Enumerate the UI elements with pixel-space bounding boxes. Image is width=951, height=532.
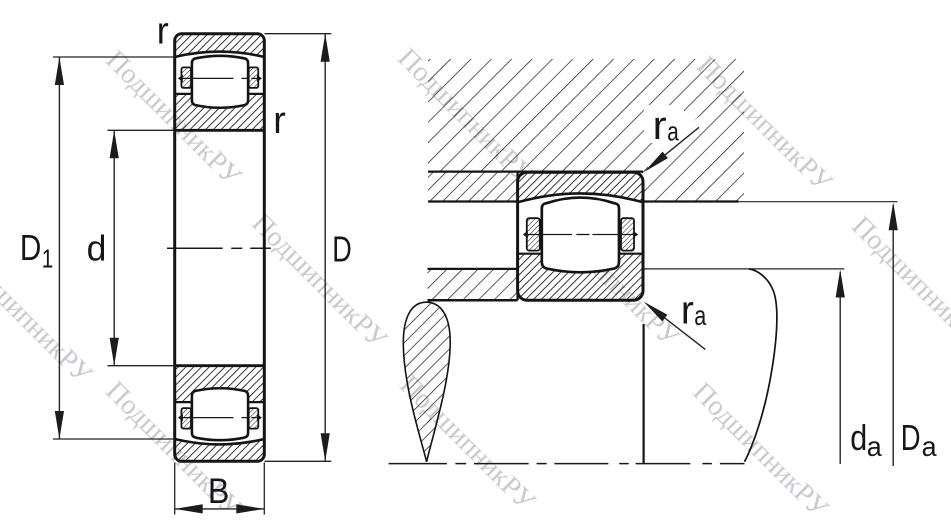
svg-text:D: D [332, 228, 352, 269]
svg-text:1: 1 [42, 243, 54, 273]
svg-text:r: r [681, 289, 694, 333]
svg-text:D: D [901, 417, 921, 458]
svg-text:a: a [667, 117, 679, 147]
svg-text:a: a [694, 300, 706, 331]
svg-text:d: d [850, 417, 867, 458]
svg-text:d: d [87, 227, 107, 268]
svg-text:B: B [208, 472, 230, 511]
svg-text:r: r [653, 104, 667, 148]
svg-text:a: a [922, 431, 937, 462]
svg-text:r: r [157, 10, 169, 52]
svg-text:a: a [867, 431, 882, 462]
svg-text:D: D [20, 227, 42, 268]
svg-text:r: r [273, 100, 286, 142]
